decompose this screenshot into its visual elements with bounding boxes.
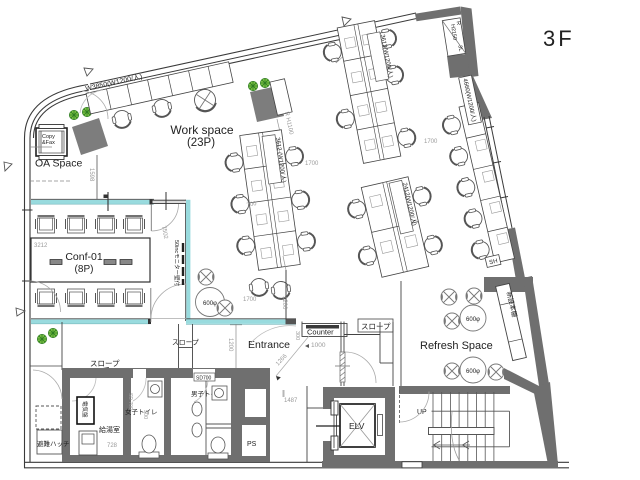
svg-text:300: 300 <box>294 331 300 340</box>
svg-text:3212: 3212 <box>34 243 48 249</box>
svg-text:728: 728 <box>107 443 118 449</box>
svg-text:1700: 1700 <box>305 161 319 167</box>
svg-text:600φ: 600φ <box>466 317 480 323</box>
svg-text:ELV: ELV <box>349 421 365 431</box>
svg-text:Work space: Work space <box>170 123 233 137</box>
svg-text:1598: 1598 <box>88 168 94 182</box>
svg-text:スロープ: スロープ <box>361 322 391 331</box>
svg-text:電気盤: 電気盤 <box>81 401 89 418</box>
svg-text:&Fax: &Fax <box>42 140 55 146</box>
svg-text:SD700: SD700 <box>196 376 212 382</box>
svg-text:1000: 1000 <box>311 342 326 349</box>
svg-text:600φ: 600φ <box>466 369 480 375</box>
svg-text:50incモニター壁付: 50incモニター壁付 <box>173 240 181 287</box>
svg-text:3L: 3L <box>456 45 463 52</box>
svg-text:3F: 3F <box>543 26 575 51</box>
svg-text:Counter: Counter <box>307 328 334 337</box>
svg-text:1700: 1700 <box>424 139 438 145</box>
svg-text:スロープ: スロープ <box>90 359 120 368</box>
svg-text:給湯室: 給湯室 <box>99 425 120 434</box>
svg-text:1200: 1200 <box>281 296 287 310</box>
svg-text:1200: 1200 <box>227 338 233 352</box>
svg-text:スロープ: スロープ <box>172 339 199 347</box>
svg-text:600φ: 600φ <box>203 301 217 307</box>
svg-text:SD 700: SD 700 <box>127 393 133 410</box>
svg-text:1700: 1700 <box>243 297 257 303</box>
svg-text:500: 500 <box>142 410 148 419</box>
svg-text:1487: 1487 <box>284 398 298 404</box>
svg-text:(8P): (8P) <box>75 264 94 275</box>
svg-text:(23P): (23P) <box>187 137 215 149</box>
svg-text:避難ハッチ: 避難ハッチ <box>37 439 70 448</box>
svg-text:Entrance: Entrance <box>248 339 290 351</box>
svg-text:Conf-01: Conf-01 <box>65 251 103 263</box>
svg-text:OA Space: OA Space <box>35 158 82 170</box>
svg-text:PS: PS <box>247 441 257 448</box>
svg-text:Refresh Space: Refresh Space <box>420 340 493 352</box>
